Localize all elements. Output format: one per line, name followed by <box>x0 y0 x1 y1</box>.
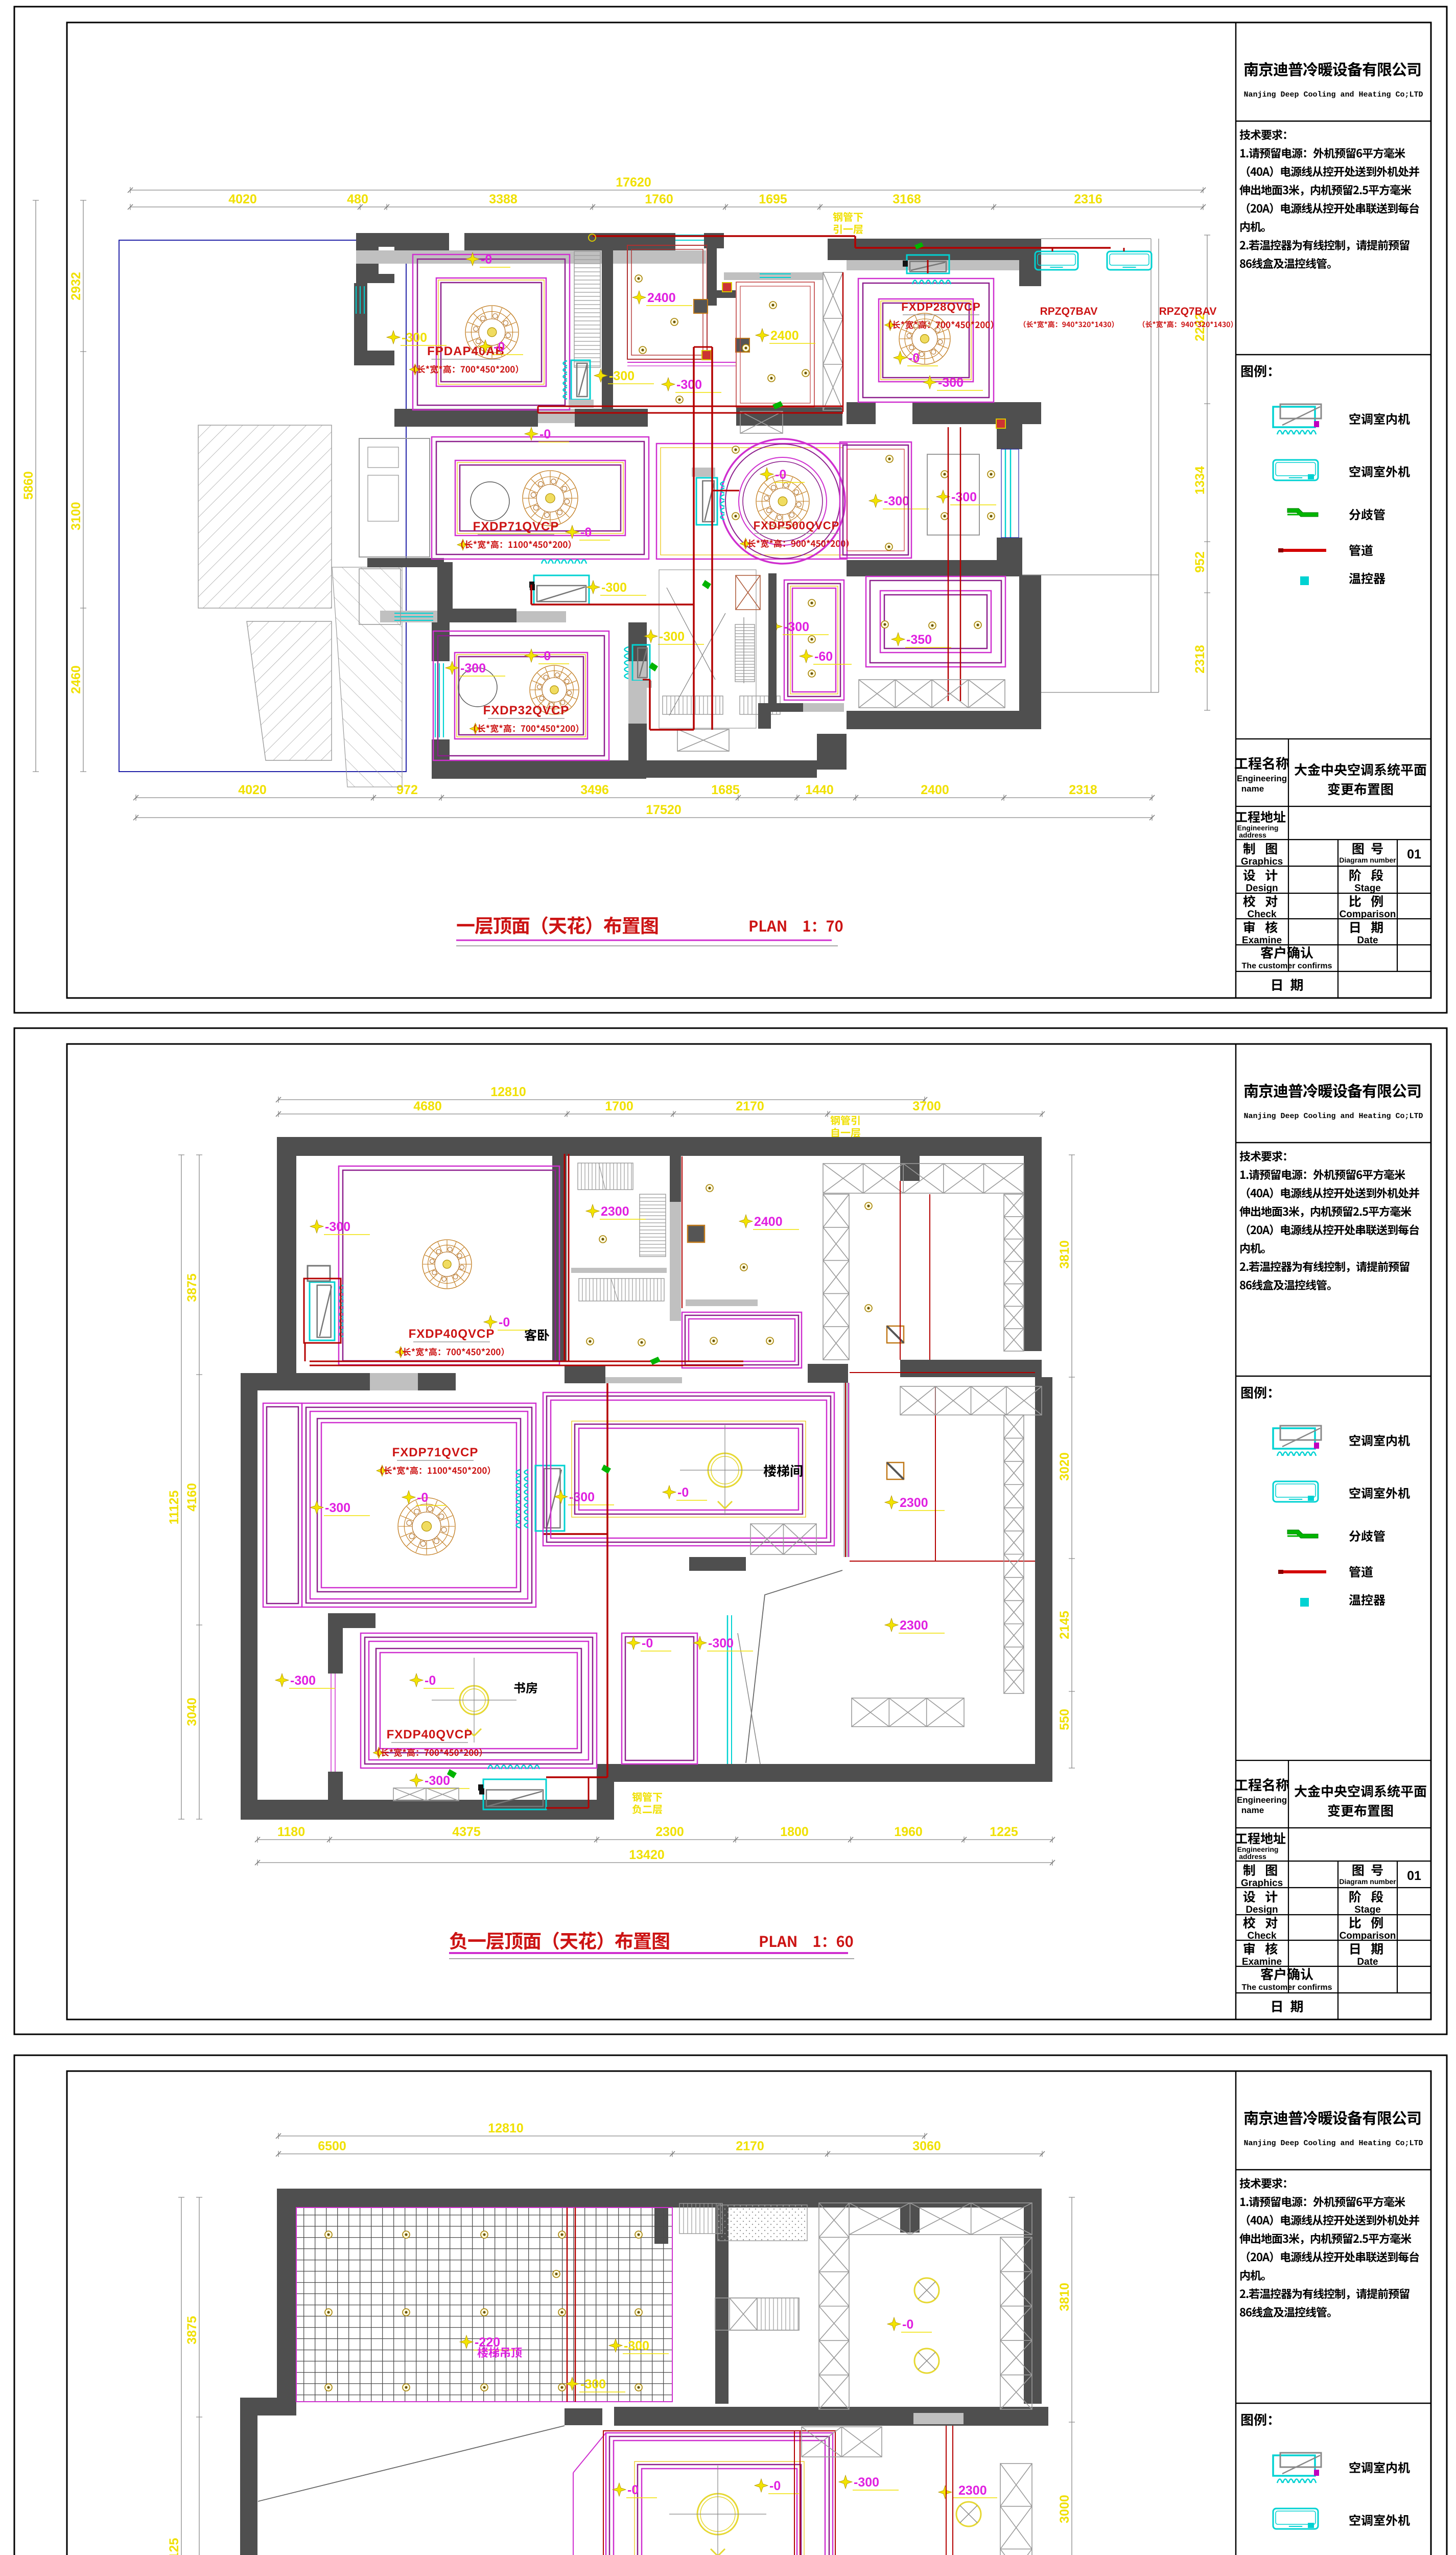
svg-text:2460: 2460 <box>69 665 83 694</box>
svg-text:Comparison: Comparison <box>1340 1931 1396 1941</box>
svg-text:3020: 3020 <box>1058 1452 1072 1481</box>
svg-text:3168: 3168 <box>893 192 921 206</box>
svg-text:01: 01 <box>1407 1869 1421 1883</box>
svg-text:12810: 12810 <box>490 1085 526 1099</box>
svg-text:Examine: Examine <box>1242 935 1282 946</box>
svg-text:3388: 3388 <box>489 192 518 206</box>
svg-text:-0: -0 <box>677 1485 689 1500</box>
svg-text:1334: 1334 <box>1193 466 1207 495</box>
svg-text:2300: 2300 <box>900 1618 928 1633</box>
svg-text:FXDP28QVCP: FXDP28QVCP <box>901 300 981 313</box>
svg-text:2316: 2316 <box>1074 192 1102 206</box>
svg-text:Date: Date <box>1357 935 1378 946</box>
svg-text:2400: 2400 <box>770 329 799 343</box>
svg-text:-350: -350 <box>906 633 932 647</box>
svg-text:2400: 2400 <box>754 1215 783 1229</box>
svg-text:Engineering: Engineering <box>1237 1795 1287 1805</box>
svg-text:-0: -0 <box>494 340 505 354</box>
svg-text:5860: 5860 <box>21 471 36 500</box>
svg-text:-300: -300 <box>580 2377 606 2391</box>
svg-text:-0: -0 <box>425 1674 436 1688</box>
svg-text:11125: 11125 <box>167 1491 181 1525</box>
svg-text:-300: -300 <box>951 490 977 504</box>
svg-text:-300: -300 <box>325 1220 350 1234</box>
svg-text:-300: -300 <box>676 378 702 392</box>
svg-text:2300: 2300 <box>601 1204 629 1219</box>
svg-text:FXDP71QVCP: FXDP71QVCP <box>392 1446 479 1459</box>
svg-text:-220: -220 <box>475 2335 500 2350</box>
svg-text:3700: 3700 <box>912 1099 941 1113</box>
svg-text:FXDP500QVCP: FXDP500QVCP <box>754 519 840 532</box>
svg-text:-300: -300 <box>708 1636 734 1651</box>
svg-text:3875: 3875 <box>185 1273 199 1302</box>
svg-text:3060: 3060 <box>912 2139 941 2153</box>
svg-text:2400: 2400 <box>921 783 949 797</box>
svg-text:-0: -0 <box>481 252 492 267</box>
svg-text:Design: Design <box>1246 883 1278 894</box>
svg-text:FXDP40QVCP: FXDP40QVCP <box>409 1327 495 1341</box>
svg-text:3496: 3496 <box>580 783 609 797</box>
svg-text:address: address <box>1239 1852 1266 1861</box>
svg-text:2400: 2400 <box>647 291 676 305</box>
svg-text:17520: 17520 <box>646 803 682 817</box>
svg-text:-300: -300 <box>884 494 909 508</box>
svg-text:2932: 2932 <box>69 272 83 300</box>
svg-text:-300: -300 <box>784 620 809 634</box>
svg-text:-0: -0 <box>642 1636 653 1651</box>
svg-text:1700: 1700 <box>605 1099 633 1113</box>
svg-text:3040: 3040 <box>185 1698 199 1726</box>
svg-text:Check: Check <box>1247 1931 1276 1941</box>
svg-text:-0: -0 <box>499 1315 510 1330</box>
svg-text:-0: -0 <box>539 649 551 663</box>
svg-text:FXDP32QVCP: FXDP32QVCP <box>483 704 570 717</box>
svg-text:FXDP71QVCP: FXDP71QVCP <box>473 520 559 533</box>
svg-text:-300: -300 <box>624 2339 649 2353</box>
svg-text:The customer confirms: The customer confirms <box>1242 1983 1332 1992</box>
svg-text:-300: -300 <box>659 630 685 644</box>
svg-text:2318: 2318 <box>1069 783 1097 797</box>
svg-text:1800: 1800 <box>780 1825 809 1839</box>
svg-text:Examine: Examine <box>1242 1957 1282 1967</box>
svg-text:-0: -0 <box>580 525 592 540</box>
svg-text:-0: -0 <box>908 351 920 365</box>
svg-text:4680: 4680 <box>413 1099 442 1113</box>
svg-text:2300: 2300 <box>655 1825 684 1839</box>
svg-text:Check: Check <box>1247 909 1276 920</box>
svg-text:Graphics: Graphics <box>1241 1878 1283 1889</box>
svg-text:-300: -300 <box>325 1501 350 1515</box>
svg-text:-0: -0 <box>417 1491 428 1505</box>
svg-text:4160: 4160 <box>185 1483 199 1512</box>
svg-text:2300: 2300 <box>900 1496 928 1510</box>
svg-text:-0: -0 <box>775 468 786 482</box>
svg-text:Date: Date <box>1357 1957 1378 1967</box>
svg-text:4375: 4375 <box>452 1825 481 1839</box>
svg-text:-300: -300 <box>938 376 964 390</box>
svg-text:FXDP40QVCP: FXDP40QVCP <box>387 1728 473 1741</box>
svg-text:-0: -0 <box>539 427 551 442</box>
svg-text:4020: 4020 <box>228 192 257 206</box>
svg-text:-300: -300 <box>609 369 635 383</box>
svg-text:Diagram number: Diagram number <box>1339 856 1396 864</box>
svg-text:6500: 6500 <box>318 2139 346 2153</box>
svg-text:RPZQ7BAV: RPZQ7BAV <box>1159 306 1217 317</box>
svg-text:1440: 1440 <box>805 783 834 797</box>
svg-text:952: 952 <box>1193 551 1207 573</box>
svg-text:01: 01 <box>1407 847 1421 862</box>
svg-text:1960: 1960 <box>894 1825 923 1839</box>
svg-text:2170: 2170 <box>736 1099 764 1113</box>
svg-text:-0: -0 <box>627 2483 639 2497</box>
svg-text:4020: 4020 <box>238 783 267 797</box>
svg-text:Nanjing Deep Cooling and Heati: Nanjing Deep Cooling and Heating Co;LTD <box>1243 1112 1423 1121</box>
svg-text:1695: 1695 <box>759 192 787 206</box>
svg-text:1180: 1180 <box>277 1825 305 1839</box>
svg-text:2318: 2318 <box>1193 645 1207 673</box>
svg-text:2300: 2300 <box>958 2483 987 2498</box>
svg-text:12810: 12810 <box>488 2121 524 2135</box>
svg-text:Comparison: Comparison <box>1340 909 1396 920</box>
svg-text:550: 550 <box>1058 1709 1072 1730</box>
svg-text:address: address <box>1239 831 1266 839</box>
svg-text:-300: -300 <box>854 2475 879 2490</box>
svg-text:-300: -300 <box>290 1674 316 1688</box>
svg-text:RPZQ7BAV: RPZQ7BAV <box>1040 306 1098 317</box>
svg-text:-300: -300 <box>402 331 427 345</box>
svg-text:1760: 1760 <box>645 192 673 206</box>
svg-text:-300: -300 <box>425 1774 450 1788</box>
svg-text:3810: 3810 <box>1058 2283 1072 2311</box>
svg-text:3100: 3100 <box>69 502 83 530</box>
svg-text:480: 480 <box>347 192 368 206</box>
svg-text:1685: 1685 <box>711 783 740 797</box>
svg-text:Diagram number: Diagram number <box>1339 1877 1396 1886</box>
svg-text:Design: Design <box>1246 1904 1278 1915</box>
svg-text:Nanjing Deep Cooling and Heati: Nanjing Deep Cooling and Heating Co;LTD <box>1243 2139 1423 2148</box>
svg-text:-300: -300 <box>601 580 627 595</box>
svg-text:17620: 17620 <box>616 175 651 190</box>
svg-text:1225: 1225 <box>990 1825 1018 1839</box>
svg-text:2145: 2145 <box>1058 1611 1072 1639</box>
svg-text:3875: 3875 <box>185 2316 199 2344</box>
svg-text:-0: -0 <box>902 2317 913 2332</box>
svg-text:-300: -300 <box>569 1490 595 1504</box>
svg-text:Graphics: Graphics <box>1241 856 1283 867</box>
svg-text:Engineering: Engineering <box>1237 774 1287 783</box>
svg-text:The customer confirms: The customer confirms <box>1242 962 1332 970</box>
svg-text:-300: -300 <box>460 661 486 676</box>
svg-text:-0: -0 <box>769 2479 781 2493</box>
svg-text:13420: 13420 <box>629 1848 665 1862</box>
svg-text:-60: -60 <box>814 649 833 664</box>
svg-text:3810: 3810 <box>1058 1240 1072 1269</box>
svg-text:Stage: Stage <box>1354 883 1381 894</box>
svg-text:2170: 2170 <box>736 2139 764 2153</box>
svg-text:name: name <box>1241 784 1264 794</box>
svg-text:3000: 3000 <box>1058 2495 1072 2523</box>
svg-text:name: name <box>1241 1805 1264 1815</box>
svg-text:Nanjing Deep Cooling and Heati: Nanjing Deep Cooling and Heating Co;LTD <box>1243 90 1423 99</box>
svg-text:Stage: Stage <box>1354 1904 1381 1915</box>
svg-text:11125: 11125 <box>167 2538 181 2555</box>
